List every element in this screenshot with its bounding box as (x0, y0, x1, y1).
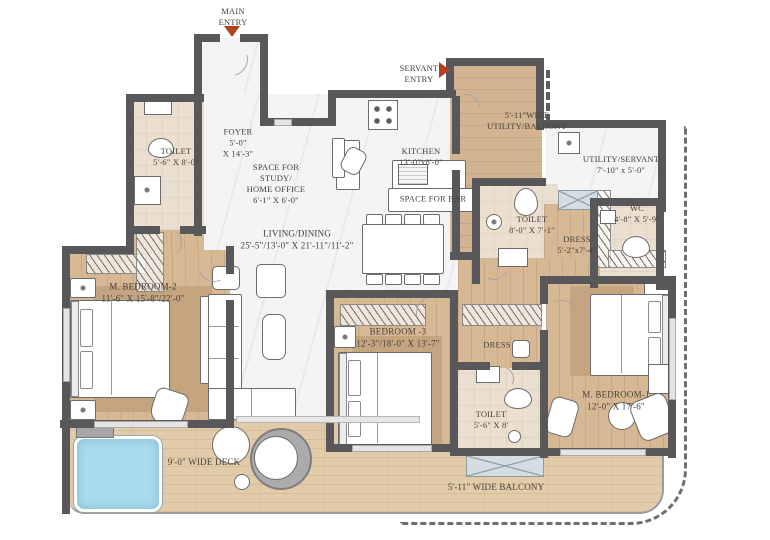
wall (260, 34, 268, 126)
entry-label: MAIN ENTRY (219, 6, 248, 28)
window (560, 449, 646, 456)
dining-chair (385, 214, 402, 225)
wall (260, 118, 336, 126)
deck-stool (234, 474, 250, 490)
wall (450, 290, 458, 456)
wall (452, 96, 460, 154)
wall (328, 90, 336, 126)
entry-label: SERVANT ENTRY (400, 63, 439, 85)
dining-chair (404, 274, 421, 285)
toilet-b3-wc (504, 388, 532, 409)
wardrobe-bedroom3 (340, 304, 426, 326)
stool-dress-b3 (512, 340, 530, 358)
balcony-planter (466, 455, 544, 477)
dining-table (362, 224, 444, 274)
dining-chair (366, 274, 383, 285)
wall (472, 178, 546, 186)
wall (226, 300, 234, 428)
main-entry-arrow (224, 26, 240, 37)
wall (194, 34, 202, 236)
stove-icon (368, 100, 398, 130)
wall (326, 290, 334, 452)
wall (544, 120, 666, 128)
dining-chair (385, 274, 402, 285)
dining-chair (423, 274, 440, 285)
label-servant-entry: SERVANT ENTRY (400, 63, 439, 85)
nightstand-mbr2-bottom (70, 400, 96, 420)
nightstand-bedroom3 (334, 326, 356, 348)
sofa-vertical (208, 294, 242, 392)
dining-chair (423, 214, 440, 225)
sink-toilet-tl (144, 100, 172, 115)
bed-bedroom3 (338, 352, 432, 446)
wardrobe-dress-b3 (462, 304, 542, 326)
coffee-table (256, 264, 286, 298)
wall (446, 58, 544, 66)
wall (326, 290, 458, 298)
wall (452, 170, 460, 258)
bed-mbr2 (70, 300, 170, 398)
sink-wc (600, 210, 616, 224)
deck-table-small (212, 426, 250, 464)
nightstand-mbr2-top (70, 278, 96, 298)
dining-chair (404, 214, 421, 225)
wall (64, 246, 134, 254)
floor-plan: MAIN ENTRY SERVANT ENTRY FOYER 5'-0" X 1… (0, 0, 770, 540)
wall (126, 226, 160, 234)
bar-counter (388, 188, 480, 212)
window (63, 308, 70, 382)
property-line-top (546, 70, 552, 122)
sliding-door-track (236, 416, 420, 423)
window (274, 119, 292, 126)
deck-table-large-top (254, 436, 298, 480)
wc-fixture (622, 236, 650, 258)
label-main-entry: MAIN ENTRY (219, 6, 248, 28)
wall (536, 64, 544, 130)
plunge-pool (74, 436, 162, 512)
dining-chair (366, 214, 383, 225)
wall (472, 178, 480, 284)
toilet-mid-wc (514, 188, 538, 216)
knob-toilet-b3 (508, 430, 521, 443)
wall (458, 362, 490, 370)
wall (540, 276, 548, 304)
window (94, 421, 188, 428)
servant-entry-arrow (439, 62, 450, 78)
wall (512, 362, 546, 370)
window (352, 445, 432, 452)
wall (330, 90, 456, 98)
kitchen-sink (398, 164, 428, 185)
wall (226, 246, 234, 274)
sink-toilet-mid (498, 248, 528, 267)
toilet-tl-wc (148, 138, 174, 158)
wall (540, 330, 548, 458)
wall (180, 226, 206, 234)
wall (590, 198, 598, 288)
wall (540, 276, 676, 284)
wall (128, 94, 204, 102)
toilet-topleft-floor (130, 98, 204, 230)
ottoman (262, 314, 286, 360)
wall (450, 252, 480, 260)
window (669, 318, 676, 400)
wall (450, 448, 546, 456)
washer-utility (558, 132, 580, 154)
shower-toilet-tl (134, 176, 161, 205)
shower-toilet-mid (486, 214, 502, 230)
